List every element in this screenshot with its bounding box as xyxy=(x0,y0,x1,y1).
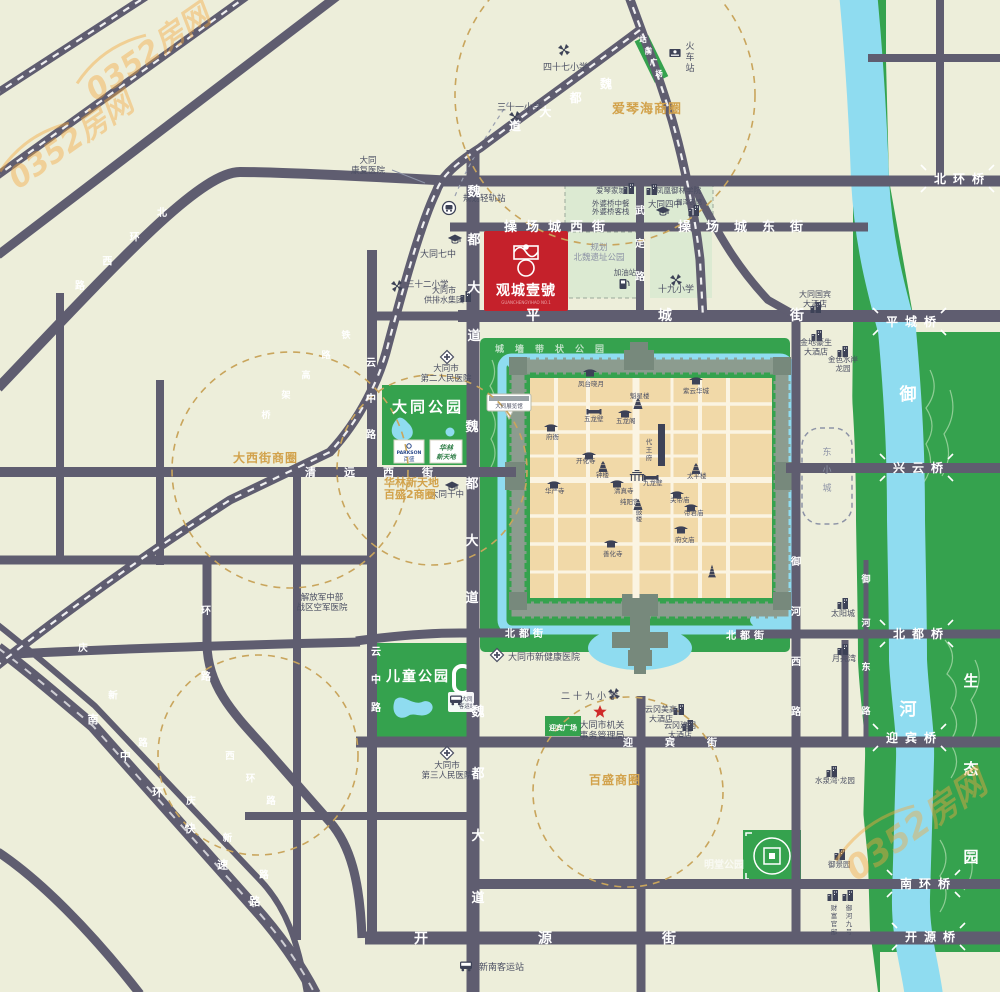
train-icon xyxy=(669,49,680,57)
map-label: 紫云华城 xyxy=(683,386,710,395)
vertical-road-label: 河 xyxy=(861,617,870,629)
vertical-road-label: 河 xyxy=(846,912,853,920)
map-label: 三十一小学 xyxy=(497,101,542,113)
map-label: 迎宾街 xyxy=(623,736,749,749)
bridge-label: 北都桥 xyxy=(893,626,950,641)
map-label: 规划 xyxy=(590,242,607,253)
vertical-road-label: 都 xyxy=(464,476,478,492)
vertical-road-label: 火 xyxy=(685,41,694,52)
map-label: 大同 xyxy=(359,155,376,166)
vertical-road-label: 大 xyxy=(471,828,484,844)
project-block: 观城壹號 GUANCHENGYIHAO NO.1 xyxy=(484,231,568,311)
map-label: 儿童公园 xyxy=(385,668,450,685)
map-label: 九龙壁 xyxy=(643,478,663,487)
diagonal-road-label: 高 xyxy=(301,369,310,381)
map-label: 大同七中 xyxy=(420,248,456,260)
map-label: 大西街商圈 xyxy=(233,450,298,465)
map-label: 百盛商圈 xyxy=(589,772,641,787)
bridge-label: 兴云桥 xyxy=(893,460,950,475)
hualin-line2: 新天地 xyxy=(436,453,457,461)
map-label: 金地豪生 xyxy=(800,337,832,347)
vertical-road-label: 道 xyxy=(471,890,484,906)
diagonal-road-label: 环 xyxy=(152,786,163,799)
vertical-road-label: 御 xyxy=(899,384,917,405)
map-label: 平城街 xyxy=(526,307,922,324)
vertical-road-label: 河 xyxy=(900,700,917,720)
diagonal-road-label: 庆 xyxy=(77,642,88,654)
map-label: 迎宾广场 xyxy=(549,723,577,732)
map-label: 康复医院 xyxy=(351,165,386,176)
vertical-road-label: 王 xyxy=(646,446,653,454)
map-label: 帝君庙 xyxy=(684,508,704,517)
vertical-road-label: 西 xyxy=(791,656,801,668)
map-label: 太平楼 xyxy=(687,471,707,480)
map-label: 关帝庙 xyxy=(670,495,690,504)
vertical-road-label: 御 xyxy=(790,555,801,568)
bridge-label: 迎宾桥 xyxy=(886,730,943,745)
map-label: 太阳城 xyxy=(831,608,855,618)
map-label: 华严寺 xyxy=(545,486,565,495)
project-latin: GUANCHENGYIHAO NO.1 xyxy=(501,300,551,305)
map-label: 开源街 xyxy=(414,930,786,947)
map-label: 府文庙 xyxy=(675,535,695,544)
project-name: 观城壹號 xyxy=(496,282,556,299)
vertical-road-label: 河 xyxy=(791,606,801,618)
vertical-road-label: 路 xyxy=(791,705,802,718)
diagonal-road-label: 站 xyxy=(639,34,647,44)
map-label: 新南客运站 xyxy=(479,961,524,973)
vertical-road-label: 官 xyxy=(831,919,838,928)
map-label: 北魏遗址公园 xyxy=(573,252,624,263)
map-label: 大同市新健康医院 xyxy=(508,651,580,663)
diagonal-road-label: 新 xyxy=(223,832,233,844)
parkson-box: PARKSON 百盛 xyxy=(394,440,424,463)
map-label: 大同展览馆 xyxy=(495,402,523,410)
diagonal-road-label: 路 xyxy=(259,869,269,881)
map-label: 凤凰御林学院 xyxy=(656,185,701,195)
map-label: 城墙带状公园 xyxy=(495,343,615,355)
map-label: 大同市 xyxy=(432,285,456,295)
map-label: 战区空军医院 xyxy=(296,602,348,613)
map-label: 府衙 xyxy=(546,432,560,441)
parkson-latin: PARKSON xyxy=(397,450,422,456)
diagonal-road-label: 道 xyxy=(509,118,521,133)
bridge-label: 北环桥 xyxy=(934,171,991,186)
vertical-road-label: 云 xyxy=(371,646,381,658)
diagonal-road-label: 路 xyxy=(266,795,276,807)
vertical-road-label: 站 xyxy=(685,62,694,74)
map-label: 北都街 xyxy=(505,627,547,640)
map-label: 钟楼 xyxy=(596,470,610,479)
vertical-road-label: 财 xyxy=(831,903,838,912)
map-label: 大同市机关 xyxy=(579,719,624,731)
diagonal-road-label: 速 xyxy=(217,858,228,872)
map-label: 供排水集团 xyxy=(424,295,464,305)
vertical-road-label: 城 xyxy=(822,483,831,494)
vertical-road-label: 大 xyxy=(465,533,478,549)
vertical-road-label: 代 xyxy=(646,437,653,446)
map-label: 第三人民医院 xyxy=(421,770,473,781)
diagonal-road-label: 新 xyxy=(108,690,118,702)
vertical-road-label: 九 xyxy=(846,919,853,928)
map-label: 明堂公园 xyxy=(704,858,744,871)
vertical-road-label: 魏 xyxy=(466,184,480,200)
diagonal-road-label: 环 xyxy=(246,774,256,785)
vertical-road-label: 号 xyxy=(846,928,853,936)
diagonal-road-label: 中 xyxy=(120,748,131,762)
map-label: 月亮湾 xyxy=(832,653,856,663)
vertical-road-label: 园 xyxy=(963,848,978,866)
vertical-road-label: 武 xyxy=(635,204,645,217)
map-label: 大同市 xyxy=(433,363,459,374)
map-label: 开化寺 xyxy=(576,456,596,465)
vertical-road-label: 御 xyxy=(860,573,870,585)
map-label: 二十九小学 xyxy=(561,690,621,702)
vertical-road-label: 邸 xyxy=(831,928,838,936)
vertical-road-label: 道 xyxy=(465,590,478,606)
map-label: 十九小学 xyxy=(658,283,694,295)
map-label: 北都街 xyxy=(726,629,768,642)
vertical-road-label: 车 xyxy=(685,51,694,63)
diagonal-road-label: 广 xyxy=(650,57,658,67)
map-label: 加油站 xyxy=(614,267,637,277)
diagonal-road-label: 西 xyxy=(102,256,112,268)
map-label: 事务管理局 xyxy=(579,730,624,742)
map-label: 善化寺 xyxy=(603,549,623,558)
map-label: 大同 xyxy=(461,695,473,703)
vertical-road-label: 都 xyxy=(466,232,480,248)
vertical-road-label: 都 xyxy=(470,766,484,782)
diagonal-road-label: 铁 xyxy=(341,329,350,341)
hualin-line1: 华林 xyxy=(439,443,454,452)
map-canvas: 观城壹號 GUANCHENGYIHAO NO.1 PARKSON 百盛 华林 新… xyxy=(0,0,1000,992)
map-label: 操场城西街 xyxy=(504,219,614,235)
map-label: 魁星楼 xyxy=(630,391,650,400)
map-label: 云冈建国 xyxy=(664,720,696,730)
vertical-road-label: 定 xyxy=(635,237,645,250)
map-label: 凤台晓月 xyxy=(578,379,604,388)
map-label: 大同市 xyxy=(434,760,460,771)
vertical-road-label: 中 xyxy=(366,392,376,405)
diagonal-road-label: 西 xyxy=(225,751,235,762)
vertical-road-label: 富 xyxy=(831,911,838,920)
diagonal-road-label: 架 xyxy=(280,389,290,401)
vertical-road-label: 路 xyxy=(635,270,646,283)
vertical-road-label: 楼 xyxy=(636,514,643,523)
bridge-label: 平城桥 xyxy=(886,314,943,329)
diagonal-road-label: 都 xyxy=(569,90,582,105)
diagonal-road-label: 环 xyxy=(130,231,140,243)
vertical-road-label: 道 xyxy=(467,328,480,344)
diagonal-road-label: 庆 xyxy=(185,795,196,807)
map-label: 大酒店 xyxy=(804,347,828,357)
vertical-road-label: 东 xyxy=(822,446,831,458)
map-label: 纯阳宫 xyxy=(620,497,640,506)
map-label: 四十七小学 xyxy=(543,61,588,73)
vertical-road-label: 路 xyxy=(371,701,382,714)
diagonal-road-label: 北 xyxy=(157,206,167,219)
daiwangfu-strip xyxy=(658,424,665,466)
map-label: 龙园 xyxy=(836,363,851,373)
vertical-road-label: 云 xyxy=(366,357,376,369)
diagonal-road-label: 路 xyxy=(250,894,262,908)
map-label: 解放军中部 xyxy=(301,592,344,603)
map-label: 大酒店 xyxy=(803,299,827,309)
map-label: 清远西街 xyxy=(305,465,461,479)
diagonal-road-label: 桥 xyxy=(261,409,271,421)
vertical-road-label: 环 xyxy=(201,605,211,617)
vertical-road-label: 路 xyxy=(201,670,212,683)
map-label: 五龙壁 xyxy=(584,414,604,423)
map-label: 金色水岸 xyxy=(828,354,858,364)
map-label: 百盛2商圈 xyxy=(384,487,436,501)
vertical-road-label: 小 xyxy=(822,465,831,476)
vertical-road-label: 东 xyxy=(861,661,870,673)
vertical-road-label: 路 xyxy=(861,705,871,717)
map-label: 爱琴海商圈 xyxy=(612,101,682,117)
map-label: 大同国宾 xyxy=(799,289,831,299)
vertical-road-label: 大 xyxy=(467,280,480,296)
diagonal-road-label: 快 xyxy=(184,821,197,835)
diagonal-road-label: 前 xyxy=(645,45,653,55)
map-label: 清真寺 xyxy=(614,486,634,495)
map-label: 水泉湾·龙园 xyxy=(815,775,855,785)
diagonal-road-label: 路 xyxy=(321,349,331,361)
diagonal-road-label: 路 xyxy=(75,279,86,292)
parkson-cn: 百盛 xyxy=(403,455,415,463)
map-label: 操场城东街 xyxy=(678,219,818,235)
vertical-road-label: 御 xyxy=(846,903,853,912)
vertical-road-label: 生 xyxy=(963,672,978,690)
map-label: 爱琴家城 xyxy=(596,185,626,195)
diagonal-road-label: 场 xyxy=(655,68,663,78)
diagonal-road-label: 大 xyxy=(539,104,551,119)
diagonal-road-label: 路 xyxy=(138,737,148,749)
diagonal-road-label: 南 xyxy=(88,712,99,726)
map-label: 外婆桥客栈 xyxy=(592,206,630,216)
hualin-box: 华林 新天地 xyxy=(430,440,462,463)
bridge-label: 南环桥 xyxy=(900,876,957,891)
diagonal-road-label: 魏 xyxy=(599,76,612,91)
vertical-road-label: 府 xyxy=(646,453,653,462)
map-label: 云冈美高 xyxy=(645,704,677,714)
metro-icon xyxy=(443,202,456,215)
map-label: 第二人民医院 xyxy=(420,373,472,384)
map-label: 润泽农馆 xyxy=(676,197,703,206)
map-label: 五龙阁 xyxy=(616,416,636,425)
vertical-road-label: 魏 xyxy=(470,704,484,720)
map-screenshot: 观城壹號 GUANCHENGYIHAO NO.1 PARKSON 百盛 华林 新… xyxy=(0,0,1000,992)
bridge-label: 开源桥 xyxy=(905,929,962,944)
map-label: 大同公园 xyxy=(392,398,464,416)
vertical-road-label: 路 xyxy=(366,428,377,441)
vertical-road-label: 中 xyxy=(371,673,381,686)
vertical-road-label: 魏 xyxy=(464,419,478,435)
